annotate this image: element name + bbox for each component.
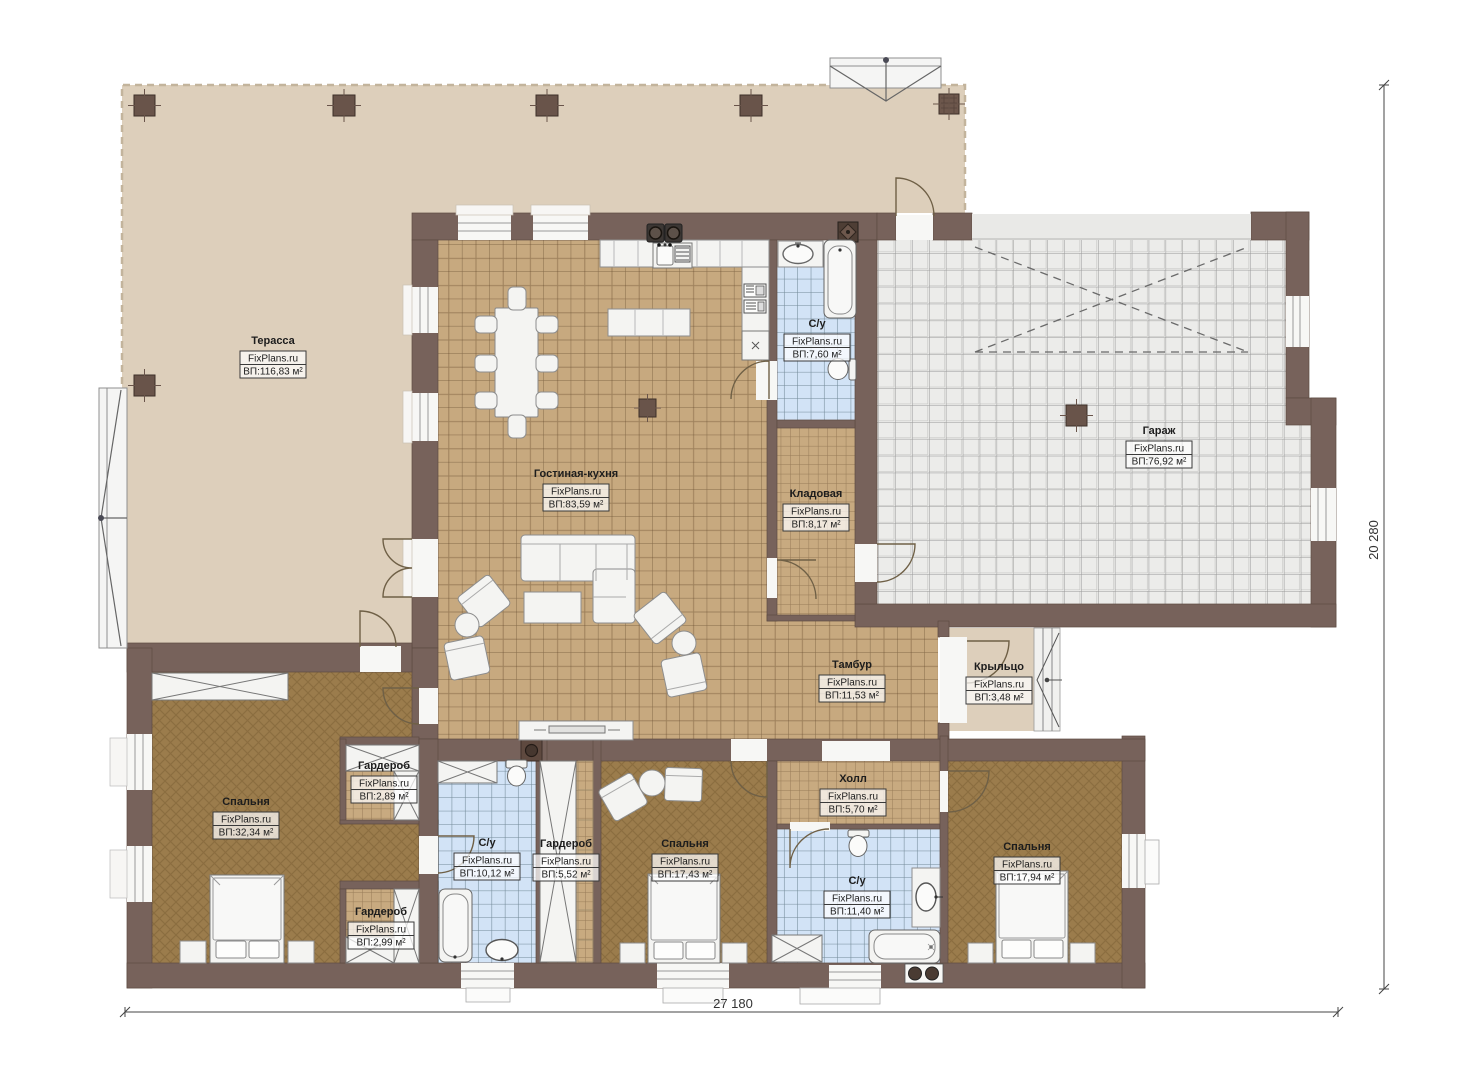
svg-text:Спальня: Спальня — [222, 796, 270, 808]
svg-text:Кладовая: Кладовая — [790, 488, 843, 500]
svg-text:ВП:5,70 м²: ВП:5,70 м² — [828, 805, 878, 816]
svg-text:FixPlans.ru: FixPlans.ru — [359, 779, 409, 790]
svg-text:ВП:83,59 м²: ВП:83,59 м² — [549, 500, 604, 511]
svg-text:Холл: Холл — [839, 773, 867, 785]
svg-text:С/у: С/у — [808, 318, 826, 330]
svg-text:ВП:116,83 м²: ВП:116,83 м² — [243, 367, 303, 378]
svg-text:ВП:7,60 м²: ВП:7,60 м² — [792, 350, 842, 361]
svg-text:Гардероб: Гардероб — [540, 838, 592, 850]
svg-text:ВП:10,12 м²: ВП:10,12 м² — [460, 869, 515, 880]
svg-text:FixPlans.ru: FixPlans.ru — [248, 354, 298, 365]
svg-text:FixPlans.ru: FixPlans.ru — [462, 856, 512, 867]
svg-text:FixPlans.ru: FixPlans.ru — [541, 857, 591, 868]
svg-text:Спальня: Спальня — [1003, 841, 1051, 853]
svg-text:FixPlans.ru: FixPlans.ru — [1002, 860, 1052, 871]
svg-text:FixPlans.ru: FixPlans.ru — [827, 678, 877, 689]
svg-text:ВП:2,99 м²: ВП:2,99 м² — [356, 938, 406, 949]
svg-text:ВП:11,40 м²: ВП:11,40 м² — [830, 907, 885, 918]
svg-text:FixPlans.ru: FixPlans.ru — [792, 337, 842, 348]
svg-text:ВП:17,94 м²: ВП:17,94 м² — [1000, 873, 1055, 884]
svg-text:FixPlans.ru: FixPlans.ru — [660, 857, 710, 868]
svg-text:Гардероб: Гардероб — [358, 760, 410, 772]
svg-text:Гардероб: Гардероб — [355, 906, 407, 918]
svg-text:ВП:32,34 м²: ВП:32,34 м² — [219, 828, 274, 839]
svg-text:Крыльцо: Крыльцо — [974, 661, 1024, 673]
svg-text:Гостиная-кухня: Гостиная-кухня — [534, 468, 618, 480]
svg-text:FixPlans.ru: FixPlans.ru — [356, 925, 406, 936]
svg-text:ВП:17,43 м²: ВП:17,43 м² — [658, 870, 713, 881]
svg-text:ВП:76,92 м²: ВП:76,92 м² — [1132, 457, 1187, 468]
svg-text:27 180: 27 180 — [713, 996, 753, 1011]
svg-text:ВП:3,48 м²: ВП:3,48 м² — [974, 693, 1024, 704]
svg-text:ВП:5,52 м²: ВП:5,52 м² — [541, 870, 591, 881]
svg-text:С/у: С/у — [848, 875, 866, 887]
svg-text:FixPlans.ru: FixPlans.ru — [832, 894, 882, 905]
svg-text:FixPlans.ru: FixPlans.ru — [974, 680, 1024, 691]
svg-text:FixPlans.ru: FixPlans.ru — [828, 792, 878, 803]
svg-text:ВП:11,53 м²: ВП:11,53 м² — [825, 691, 880, 702]
svg-text:FixPlans.ru: FixPlans.ru — [221, 815, 271, 826]
svg-text:ВП:8,17 м²: ВП:8,17 м² — [791, 520, 841, 531]
svg-text:FixPlans.ru: FixPlans.ru — [791, 507, 841, 518]
svg-text:FixPlans.ru: FixPlans.ru — [551, 487, 601, 498]
svg-text:Тамбур: Тамбур — [832, 659, 872, 671]
svg-text:С/у: С/у — [478, 837, 496, 849]
svg-text:Гараж: Гараж — [1143, 425, 1176, 437]
svg-text:Терасса: Терасса — [251, 335, 295, 347]
svg-text:20 280: 20 280 — [1366, 520, 1381, 560]
svg-text:Спальня: Спальня — [661, 838, 709, 850]
svg-text:FixPlans.ru: FixPlans.ru — [1134, 444, 1184, 455]
svg-text:ВП:2,89 м²: ВП:2,89 м² — [359, 792, 409, 803]
